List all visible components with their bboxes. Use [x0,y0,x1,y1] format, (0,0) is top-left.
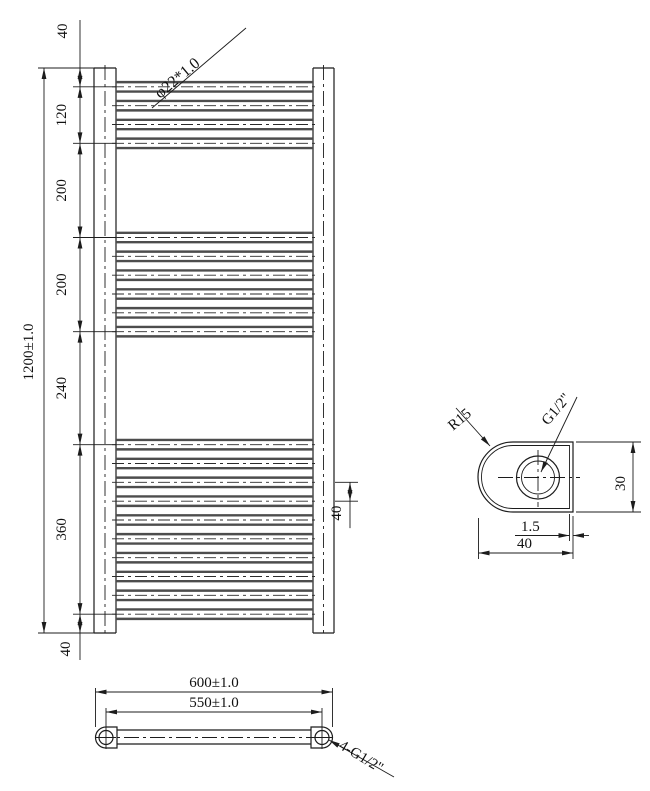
dimension-arrow [631,501,636,512]
label-tube-spec-text: φ22*1.0 [152,55,204,102]
dimension-arrow [573,533,584,538]
dim-segment-text: 120 [54,104,70,127]
dimension-arrow [78,76,83,87]
dimension-arrow [311,710,322,715]
dimension-arrow [479,551,490,556]
dimension-arrow [78,603,83,614]
section-outline [478,442,573,512]
dimension-arrow [631,442,636,453]
dimension-arrow [348,490,353,501]
dim-segment-text: 40 [55,24,71,39]
dimension-arrow [42,622,47,633]
dim-segment-text: 240 [54,377,70,400]
dim-detail-thread-text: G1/2" [539,391,574,429]
dimension-arrow [78,132,83,143]
dimension-arrow [78,87,83,98]
dim-detail-radius-text: R15 [445,406,474,434]
technical-drawing: 401202002002403604040 1200±1.0 φ22*1.0 6… [0,0,650,791]
dimension-arrow [96,690,107,695]
dimension-arrow [78,143,83,154]
dimension-arrow [78,238,83,249]
front-view-dimensions: 401202002002403604040 [38,20,358,660]
dim-segment-text: 200 [54,273,70,296]
dimension-arrow [78,321,83,332]
dim-segment-text: 200 [54,179,70,202]
label-connections-text: 4-G1/2" [336,738,386,777]
dim-detail-height-text: 30 [613,476,629,491]
dim-detail-wall-text: 1.5 [521,519,540,535]
dimension-arrow [78,622,83,633]
dimension-arrow [78,445,83,456]
dimension-arrow [78,434,83,445]
dim-center-distance-text: 550±1.0 [189,695,238,711]
dimension-arrow [559,533,570,538]
dim-detail-width-text: 40 [517,536,532,552]
dim-overall-height-text: 1200±1.0 [21,324,37,381]
front-view [94,65,334,636]
dim-overall-width-text: 600±1.0 [189,675,238,691]
dimension-arrow [322,690,333,695]
dimension-arrow [78,227,83,238]
dim-segment-text: 360 [54,518,70,541]
dimension-arrow [78,332,83,343]
dim-segment-text: 40 [58,642,74,657]
bottom-view [96,688,395,777]
dimension-arrow [106,710,117,715]
dimension-arrow [562,551,573,556]
dim-pitch-text: 40 [329,506,345,521]
section-inner-wall [482,446,570,509]
dimension-arrow [328,738,340,748]
dimension-arrow [42,68,47,79]
dimension-arrow [539,461,548,473]
